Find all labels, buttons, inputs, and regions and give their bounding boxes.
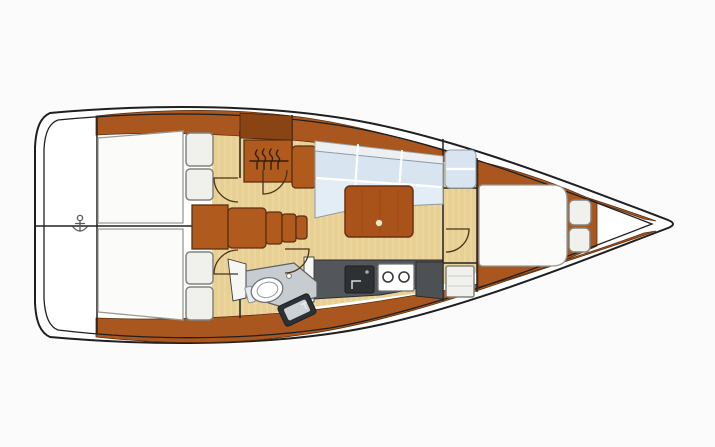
- engine-box: [192, 205, 228, 249]
- shelf-locker: [446, 266, 474, 297]
- locker-door: [186, 169, 213, 200]
- locker-door: [186, 252, 213, 284]
- companionway-cabinet: [240, 113, 292, 140]
- galley-sink: [345, 266, 374, 293]
- companionway-step: [296, 216, 307, 239]
- aft-berth-starboard: [98, 229, 183, 320]
- locker-door: [186, 287, 213, 320]
- settee-armrest: [292, 146, 316, 188]
- floorplan-canvas: [0, 0, 715, 447]
- v-berth: [479, 185, 567, 266]
- bow-cushion: [569, 228, 590, 252]
- wardrobe: [416, 262, 443, 299]
- companionway-step: [228, 208, 266, 248]
- companionway-step: [266, 212, 282, 244]
- aft-berth-port: [98, 131, 183, 223]
- saloon-table: [345, 186, 413, 237]
- companionway-step: [282, 214, 296, 242]
- locker-door: [186, 133, 213, 166]
- yacht-floorplan: [0, 0, 715, 447]
- bow-cushion: [569, 200, 591, 225]
- counter-drain: [287, 274, 292, 279]
- stove-burners: [378, 264, 414, 291]
